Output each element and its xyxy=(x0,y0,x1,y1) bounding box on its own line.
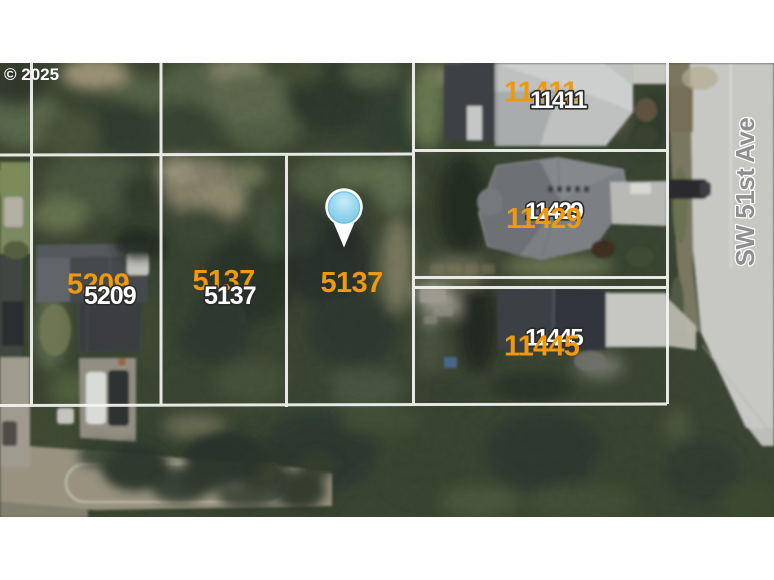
svg-text:5209: 5209 xyxy=(84,282,136,310)
svg-text:5137: 5137 xyxy=(321,267,383,299)
svg-text:11411: 11411 xyxy=(530,87,587,114)
svg-text:11445: 11445 xyxy=(504,331,580,363)
svg-text:11429: 11429 xyxy=(506,203,582,235)
svg-text:SW 51st Ave: SW 51st Ave xyxy=(730,118,760,267)
svg-text:© 2025: © 2025 xyxy=(4,65,59,84)
svg-text:5137: 5137 xyxy=(204,282,256,310)
